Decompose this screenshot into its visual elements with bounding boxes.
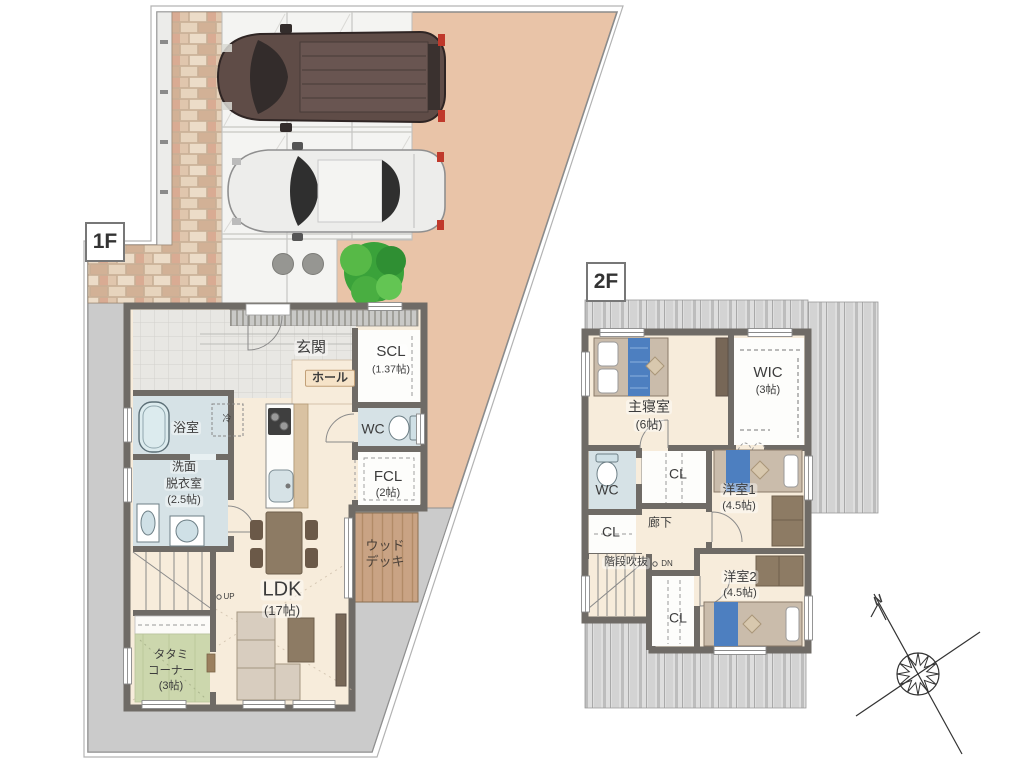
label-west2: 洋室2	[721, 570, 758, 584]
stove-icon	[268, 408, 291, 435]
dining-table	[266, 512, 302, 574]
west1-desk	[772, 496, 803, 546]
entrance-door-opening	[246, 304, 290, 315]
label-scl: SCL	[374, 344, 407, 360]
compass	[856, 594, 980, 754]
west2-bed	[704, 602, 802, 646]
master-bed	[594, 338, 668, 396]
label-west2-size: (4.5帖)	[721, 588, 759, 600]
label-senmen-size: (2.5帖)	[165, 495, 203, 507]
label-cl-left: CL	[600, 525, 622, 540]
label-wic: WIC	[751, 365, 784, 381]
label-genkan: 玄関	[294, 340, 328, 356]
label-fcl: FCL	[372, 469, 404, 485]
label-bath: 浴室	[171, 421, 201, 435]
label-scl-size: (1.37帖)	[370, 364, 412, 375]
label-master-size: (6帖)	[634, 419, 665, 432]
label-ldk: LDK	[261, 580, 304, 601]
label-dn: DN	[659, 560, 675, 568]
label-ldk-size: (17帖)	[262, 604, 302, 618]
label-fridge: 冷	[220, 414, 233, 423]
label-wic-size: (3帖)	[754, 385, 782, 397]
label-wc-2f: WC	[593, 483, 620, 498]
vanity-icon	[137, 504, 159, 542]
fence-strip	[157, 12, 172, 245]
label-tatami-2: コーナー	[146, 665, 196, 677]
label-west1-size: (4.5帖)	[720, 501, 758, 513]
floorplan-page: 1F 2F 玄関 SCL (1.37帖) ホール WC FCL (2帖) 浴室 …	[0, 0, 1024, 768]
tv-board	[336, 614, 346, 686]
label-west1: 洋室1	[720, 483, 757, 497]
label-tatami-size: (3帖)	[157, 681, 185, 693]
master-cabinet	[716, 338, 728, 396]
toilet-icon-1f	[389, 416, 418, 440]
label-senmen-2: 脱衣室	[164, 478, 204, 491]
label-cl-bottom: CL	[667, 611, 689, 626]
label-deck-1: ウッド	[363, 539, 406, 553]
label-master: 主寝室	[626, 400, 672, 415]
floor-tag-1f: 1F	[85, 222, 125, 262]
floor-tag-2f: 2F	[586, 262, 626, 302]
label-deck-2: デッキ	[363, 555, 406, 569]
washer-icon	[170, 516, 204, 546]
label-hallway: 廊下	[646, 517, 674, 530]
label-hall: ホール	[305, 370, 355, 387]
label-up: UP	[221, 593, 236, 601]
coffee-table	[288, 618, 314, 662]
stairs-1f	[133, 548, 221, 616]
label-cl-top: CL	[667, 467, 689, 482]
label-senmen-1: 洗面	[170, 461, 198, 474]
sedan	[228, 142, 445, 241]
label-fcl-size: (2帖)	[374, 488, 402, 500]
label-wc-1f: WC	[359, 422, 386, 437]
bathtub-icon	[139, 402, 169, 452]
label-tatami-1: タタミ	[152, 649, 191, 661]
label-stairwell: 階段吹抜	[602, 557, 650, 569]
van	[218, 24, 445, 132]
